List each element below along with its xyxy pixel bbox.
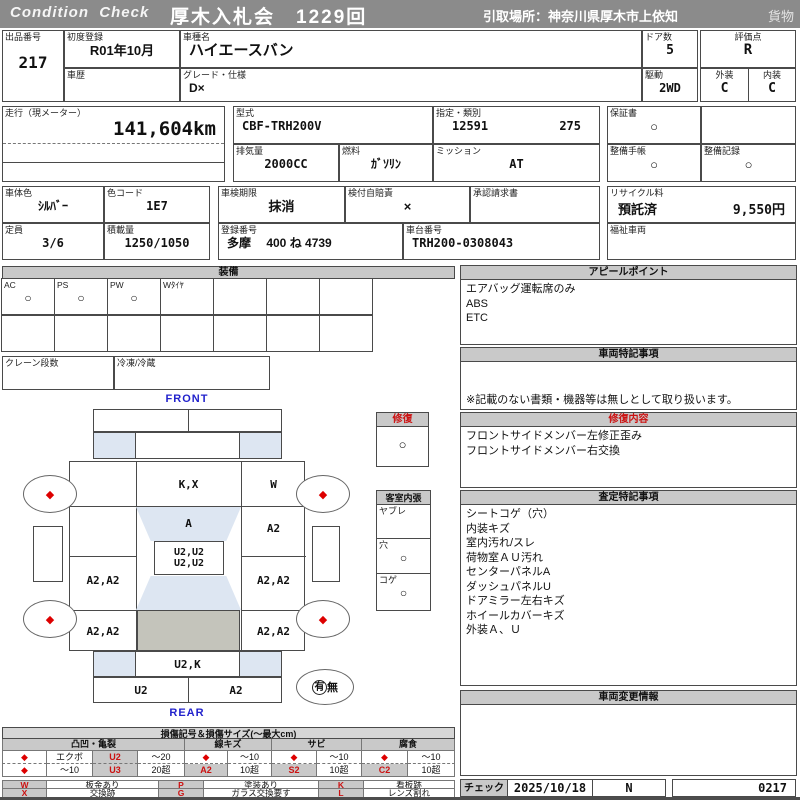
repair-flag-box: 修復 ○ [376,412,429,467]
legend-symbol-desc: 板金あり [47,781,159,789]
registration-number-label: 登録番号 [219,224,402,236]
change-info-title: 車両変更情報 [461,691,796,705]
side-step-right [312,526,340,582]
appeal-points-section: アピールポイント エアバッグ運転席のみ ABS ETC [460,265,797,345]
interior-grade-label: 内装 [749,69,795,81]
insurance-box: 検付自賠責 × [345,186,470,223]
side-step-left [33,526,63,582]
model-code-label: 型式 [234,107,432,119]
cabin-lining-title: 客室内張 [377,491,430,505]
chassis-number-label: 車台番号 [404,224,599,236]
equipment-cell-empty [54,315,108,352]
cabin-row-hole: 穴 ○ [377,539,430,574]
recycle-status: 預託済 [618,199,657,218]
first-registration-box: 初度登録 R01年10月 [64,30,180,68]
spare-tire-no: 無 [327,679,338,695]
legend-diamond-icon: ◆ [362,751,408,764]
auction-title: 厚木入札会 1229回 [170,2,367,29]
damage-diamond-icon: ◆ [46,488,54,501]
equipment-grid: AC○ PS○ PW○ Wﾀｲﾔ [2,279,380,353]
fuel-label: 燃料 [340,145,432,157]
damage-diamond-icon: ◆ [46,613,54,626]
front-bumper [93,409,282,432]
equipment-value: ○ [108,291,160,306]
rear-label: REAR [137,707,237,719]
legend-size-cell: 〜10 [47,764,93,777]
legend-code-s2: S2 [272,764,317,777]
lot-number-box: 出品番号 217 [2,30,64,102]
legend-symbol-k: K [319,781,364,789]
class-number-value: 275 [559,119,581,133]
spare-tire-yes: 有 [312,680,327,695]
legend-group-rust: サビ [272,739,362,751]
warranty-box: 保証書 ○ [607,106,701,144]
mileage-box: 走行（現メーター） 141,604km [2,106,225,182]
fuel-box: 燃料 ｶﾞｿﾘﾝ [339,144,433,182]
color-code-box: 色コード 1E7 [104,186,210,223]
color-code-label: 色コード [105,187,209,199]
drive-box: 駆動 2WD [642,68,698,102]
cabin-row-label: コゲ [377,574,430,586]
grade-label: グレード・仕様 [181,69,641,81]
recycle-fee-label: リサイクル料 [608,187,795,199]
model-name-box: 車種名 ハイエースバン [180,30,642,68]
legend-diamond-icon: ◆ [272,751,317,764]
transmission-value: AT [434,157,599,172]
wheel-front-left: ◆ [23,475,77,513]
legend-group-corrosion: 腐食 [362,739,455,751]
equipment-value: ○ [2,291,54,306]
welfare-vehicle-box: 福祉車両 [607,223,796,260]
warranty-empty-box [701,106,796,144]
welfare-vehicle-label: 福祉車両 [608,224,795,236]
pickup-location: 引取場所：神奈川県厚木市上依知 [483,6,678,25]
mileage-divider [3,143,224,162]
maintenance-book-label: 整備手帳 [608,145,700,157]
damage-diagram: FRONT K,X W A A2 U2,U2 U2,U2 [20,393,440,727]
windshield-damage: A [136,517,241,530]
vehicle-notes-title: 車両特記事項 [461,348,796,362]
legend-diamond-icon: ◆ [185,751,228,764]
repair-detail-title: 修復内容 [461,413,796,427]
equipment-cell-empty [213,278,267,315]
chassis-number-value: TRH200-0308043 [404,236,599,251]
legend-group-header-row: 凸凹・亀裂 線キズ サビ 腐食 [2,739,455,751]
equipment-label: PW [108,279,160,291]
equipment-label: Wﾀｲﾔ [161,279,213,291]
interior-grade-box: 内装 C [748,68,796,102]
spare-tire-indicator: 有無 [296,669,354,705]
roof-damage-line1: U2,U2 [155,547,223,558]
header-bar: Condition Check 厚木入札会 1229回 引取場所：神奈川県厚木市… [0,0,800,28]
freezer-label: 冷凍/冷蔵 [115,357,269,369]
transmission-box: ミッション AT [433,144,600,182]
wheel-front-right: ◆ [296,475,350,513]
check-number: 0217 [673,780,795,796]
cabin-row-value: ○ [377,586,430,600]
legend-title: 損傷記号＆損傷サイズ(〜最大cm) [2,727,455,739]
cabin-row-label: 穴 [377,539,430,551]
cowl-corner-left [94,433,136,458]
score-box: 評価点 R [700,30,796,68]
maintenance-book-value: ○ [608,157,700,172]
equipment-cell-ac: AC○ [1,278,55,315]
fuel-value: ｶﾞｿﾘﾝ [340,157,432,172]
transmission-label: ミッション [434,145,599,157]
cabin-row-burn: コゲ ○ [377,574,430,608]
displacement-value: 2000CC [234,157,338,172]
legend-symbol-p: P [159,781,204,789]
equipment-value: ○ [55,291,107,306]
assessment-line: 荷物室ＡＵ汚れ [466,551,791,566]
change-info-section: 車両変更情報 [460,690,797,776]
legend-symbol-row-1: W 板金あり P 塗装あり K 看板跡 [2,780,455,789]
equipment-cell-pw: PW○ [107,278,161,315]
rear-bumper: U2 A2 [93,677,282,703]
legend-group-scratch: 線キズ [185,739,272,751]
history-box: 車歴 [64,68,180,102]
appeal-line: ABS [466,297,791,312]
legend-code-c2: C2 [362,764,408,777]
lot-number-value: 217 [3,55,63,70]
legend-code-a2: A2 [185,764,228,777]
doors-box: ドア数 5 [642,30,698,68]
rear-bumper-right-damage: A2 [189,684,283,697]
auction-sheet: Condition Check 厚木入札会 1229回 引取場所：神奈川県厚木市… [0,0,800,800]
appeal-line: ETC [466,311,791,326]
legend-code-u3: U3 [93,764,138,777]
grade-box: グレード・仕様 D× [180,68,642,102]
equipment-cell-empty [107,315,161,352]
approval-request-label: 承認請求書 [471,187,599,199]
legend-size-cell: 〜10 [408,751,455,764]
model-name-value: ハイエースバン [181,43,641,58]
cabin-row-tear: ヤブレ [377,505,430,539]
cabin-lining-box: 客室内張 ヤブレ 穴 ○ コゲ ○ [376,490,431,611]
quarter-right-damage: A2,A2 [241,625,306,638]
equipment-label: AC [2,279,54,291]
legend-diamond-icon: ◆ [2,751,47,764]
maintenance-record-value: ○ [702,157,795,172]
registration-number-box: 登録番号 多摩 400 ね 4739 [218,223,403,260]
assessment-line: 内装キズ [466,522,791,537]
recycle-fee-value: 9,550円 [733,199,785,218]
load-capacity-label: 積載量 [105,224,209,236]
load-capacity-value: 1250/1050 [105,236,209,251]
check-date-cell: 2025/10/18 [507,779,593,797]
assessment-line: 室内汚れ/スレ [466,536,791,551]
hood-damage: K,X [136,478,241,491]
drive-label: 駆動 [643,69,697,81]
model-code-box: 型式 CBF-TRH200V [233,106,433,144]
rear-window-shape [136,576,241,610]
doors-label: ドア数 [643,31,697,43]
body-color-label: 車体色 [3,187,103,199]
front-label: FRONT [137,393,237,405]
exterior-grade-label: 外装 [701,69,748,81]
check-date: 2025/10/18 [508,780,592,796]
rear-bumper-left-damage: U2 [94,684,188,697]
vehicle-notes-note: ※記載のない書類・機器等は無しとして取り扱います。 [466,393,738,408]
legend-size-row-2: ◆ 〜10 U3 20超 A2 10超 S2 10超 C2 10超 [2,764,455,777]
insurance-label: 検付自賠責 [346,187,469,199]
quarter-left-damage: A2,A2 [70,625,136,638]
drive-value: 2WD [643,81,697,96]
repair-detail-line: フロントサイドメンバー左修正歪み [466,429,791,444]
rear-corner-left [94,652,136,676]
chassis-number-box: 車台番号 TRH200-0308043 [403,223,600,260]
wheel-rear-left: ◆ [23,600,77,638]
color-code-value: 1E7 [105,199,209,214]
doors-value: 5 [643,43,697,58]
legend-size-cell: エクボ [47,751,93,764]
recycle-fee-box: リサイクル料 預託済 9,550円 [607,186,796,223]
legend-code-u2: U2 [93,751,138,764]
equipment-cell-empty [319,315,373,352]
inspection-expiry-label: 車検期限 [219,187,344,199]
equipment-cell-empty [266,278,320,315]
displacement-label: 排気量 [234,145,338,157]
check-label-cell: チェック [460,779,508,797]
legend-size-cell: 10超 [317,764,362,777]
type-class-box: 指定・類別 12591 275 [433,106,600,144]
repair-flag-title: 修復 [377,413,428,427]
legend-diamond-icon: ◆ [2,764,47,777]
warranty-label: 保証書 [608,107,700,119]
appeal-line: エアバッグ運転席のみ [466,282,791,297]
model-code-value: CBF-TRH200V [234,119,432,134]
check-inspector: N [593,780,665,796]
car-body: K,X W A A2 U2,U2 U2,U2 A2,A2 A2,A2 A2,A2… [69,461,305,651]
displacement-box: 排気量 2000CC [233,144,339,182]
grade-value: D× [181,81,641,96]
cargo-area [137,610,240,651]
equipment-cell-empty [160,315,214,352]
insurance-value: × [346,199,469,214]
legend-symbol-desc: 看板跡 [364,781,455,789]
equipment-label: PS [55,279,107,291]
roof-panel: U2,U2 U2,U2 [154,541,224,575]
first-registration-label: 初度登録 [65,31,179,43]
mileage-empty-row [3,162,224,182]
score-value: R [701,43,795,58]
vehicle-category: 貨物 [768,6,794,25]
brand-logo: Condition Check [10,4,149,21]
legend-size-cell: 20超 [138,764,185,777]
assessment-line: ドアミラー左右キズ [466,594,791,609]
first-registration-value: R01年10月 [65,43,179,58]
body-color-value: ｼﾙﾊﾞｰ [3,199,103,214]
assessment-line: センターパネルA [466,565,791,580]
legend-size-cell: 10超 [408,764,455,777]
assessment-notes-section: 査定特記事項 シートコゲ（穴） 内装キズ 室内汚れ/スレ 荷物室ＡＵ汚れ センタ… [460,490,797,686]
roof-damage-line2: U2,U2 [155,558,223,569]
history-label: 車歴 [65,69,179,81]
assessment-line: シートコゲ（穴） [466,507,791,522]
legend-size-row-1: ◆ エクボ U2 〜20 ◆ 〜10 ◆ 〜10 ◆ 〜10 [2,751,455,764]
exterior-grade-box: 外装 C [700,68,749,102]
equipment-cell-ps: PS○ [54,278,108,315]
damage-diamond-icon: ◆ [319,613,327,626]
rear-corner-right [239,652,281,676]
damage-diamond-icon: ◆ [319,488,327,501]
check-inspector-cell: N [592,779,666,797]
mileage-value: 141,604km [3,119,224,140]
legend-size-cell: 〜10 [317,751,362,764]
legend-symbol-desc: 塗装あり [204,781,319,789]
side-right-damage: A2,A2 [241,574,306,587]
freezer-box: 冷凍/冷蔵 [114,356,270,390]
assessment-line: ホイールカバーキズ [466,609,791,624]
inspection-expiry-value: 抹消 [219,199,344,214]
wheel-rear-right: ◆ [296,600,350,638]
crane-box: クレーン段数 [2,356,114,390]
equipment-cell-empty [213,315,267,352]
assessment-notes-title: 査定特記事項 [461,491,796,505]
capacity-box: 定員 3/6 [2,223,104,260]
type-number-value: 12591 [452,119,488,133]
assessment-line: 外装Ａ、Ｕ [466,623,791,638]
legend-size-cell: 〜10 [228,751,272,764]
registration-number-value: 多摩 400 ね 4739 [219,236,402,251]
equipment-cell-empty [1,315,55,352]
maintenance-record-label: 整備記録 [702,145,795,157]
cowl-corner-right [239,433,281,458]
appeal-points-title: アピールポイント [461,266,796,280]
repair-flag-value: ○ [377,437,428,452]
legend-size-cell: 10超 [228,764,272,777]
cowl-band [93,432,282,459]
body-color-box: 車体色 ｼﾙﾊﾞｰ [2,186,104,223]
maintenance-book-box: 整備手帳 ○ [607,144,701,182]
legend-group-dent: 凸凹・亀裂 [2,739,185,751]
type-class-label: 指定・類別 [434,107,599,119]
equipment-cell-empty [266,315,320,352]
side-left-damage: A2,A2 [70,574,136,587]
cabin-row-label: ヤブレ [377,505,430,517]
repair-detail-section: 修復内容 フロントサイドメンバー左修正歪み フロントサイドメンバー右交換 [460,412,797,488]
equipment-cell-empty [319,278,373,315]
rear-band: U2,K [93,651,282,677]
crane-label: クレーン段数 [3,357,113,369]
capacity-label: 定員 [3,224,103,236]
load-capacity-box: 積載量 1250/1050 [104,223,210,260]
equipment-cell-wtire: Wﾀｲﾔ [160,278,214,315]
legend-size-cell: 〜20 [138,751,185,764]
interior-grade-value: C [749,81,795,96]
front-door-right-damage: A2 [241,522,306,535]
warranty-value: ○ [608,119,700,134]
repair-detail-line: フロントサイドメンバー右交換 [466,444,791,459]
inspection-expiry-box: 車検期限 抹消 [218,186,345,223]
approval-request-box: 承認請求書 [470,186,600,223]
lot-number-label: 出品番号 [3,31,63,43]
legend-symbol-w: W [2,781,47,789]
cabin-row-value: ○ [377,551,430,565]
exterior-grade-value: C [701,81,748,96]
assessment-line: ダッシュパネルU [466,580,791,595]
vehicle-notes-section: 車両特記事項 ※記載のない書類・機器等は無しとして取り扱います。 [460,347,797,410]
check-number-cell: 0217 [672,779,796,797]
maintenance-record-box: 整備記録 ○ [701,144,796,182]
capacity-value: 3/6 [3,236,103,251]
